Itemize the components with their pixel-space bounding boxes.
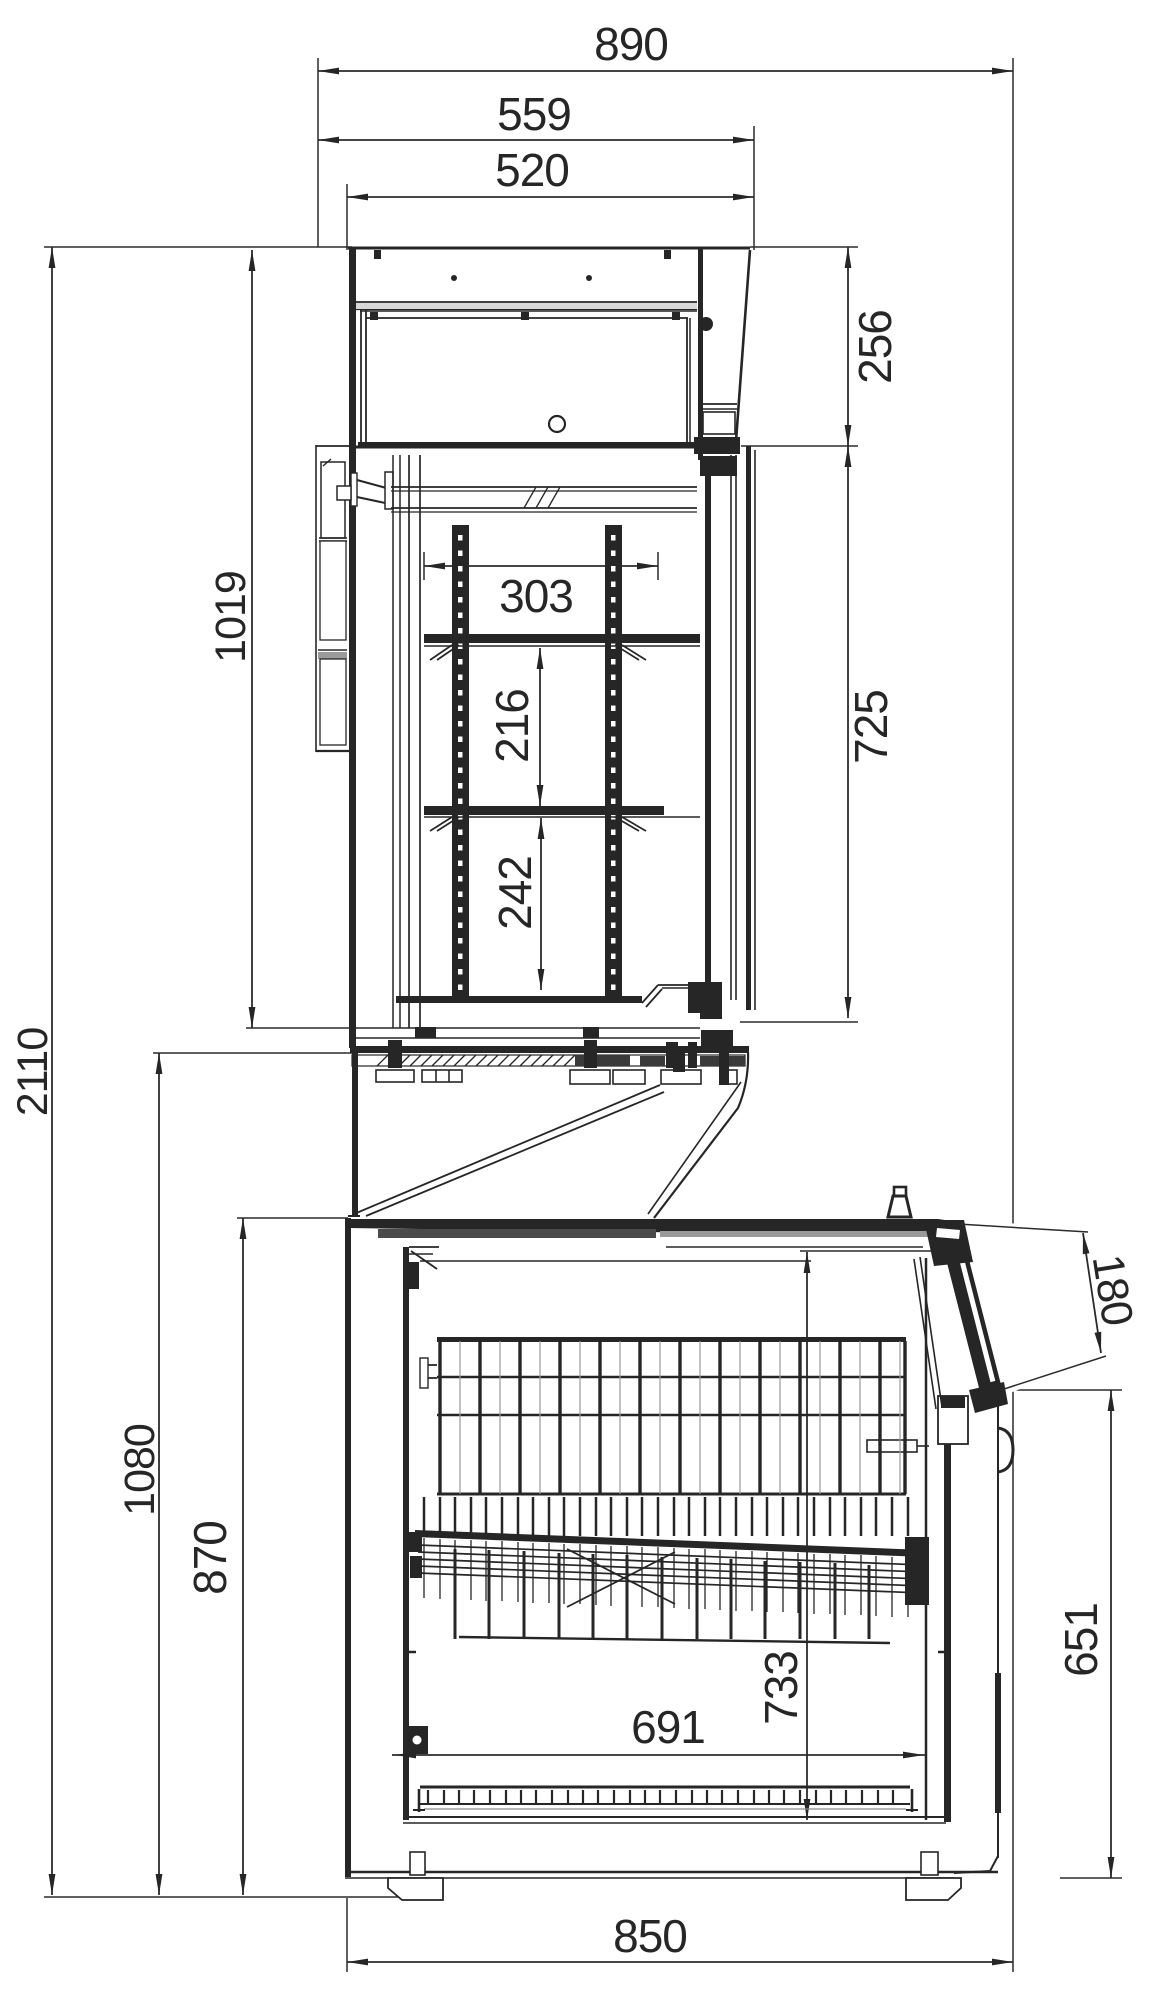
svg-text:733: 733 [755, 1651, 807, 1725]
svg-text:1019: 1019 [207, 571, 255, 663]
svg-text:303: 303 [499, 570, 573, 622]
svg-text:725: 725 [845, 690, 897, 764]
svg-text:559: 559 [497, 88, 571, 140]
svg-text:1080: 1080 [116, 1424, 164, 1516]
svg-text:216: 216 [486, 689, 538, 763]
svg-text:870: 870 [184, 1521, 236, 1595]
svg-text:2110: 2110 [9, 1028, 57, 1117]
svg-text:242: 242 [489, 856, 541, 930]
svg-text:651: 651 [1055, 1603, 1107, 1677]
svg-text:850: 850 [613, 1910, 687, 1962]
svg-text:890: 890 [594, 18, 668, 70]
svg-text:691: 691 [631, 1701, 705, 1753]
svg-text:256: 256 [849, 310, 901, 384]
svg-text:520: 520 [495, 144, 569, 196]
